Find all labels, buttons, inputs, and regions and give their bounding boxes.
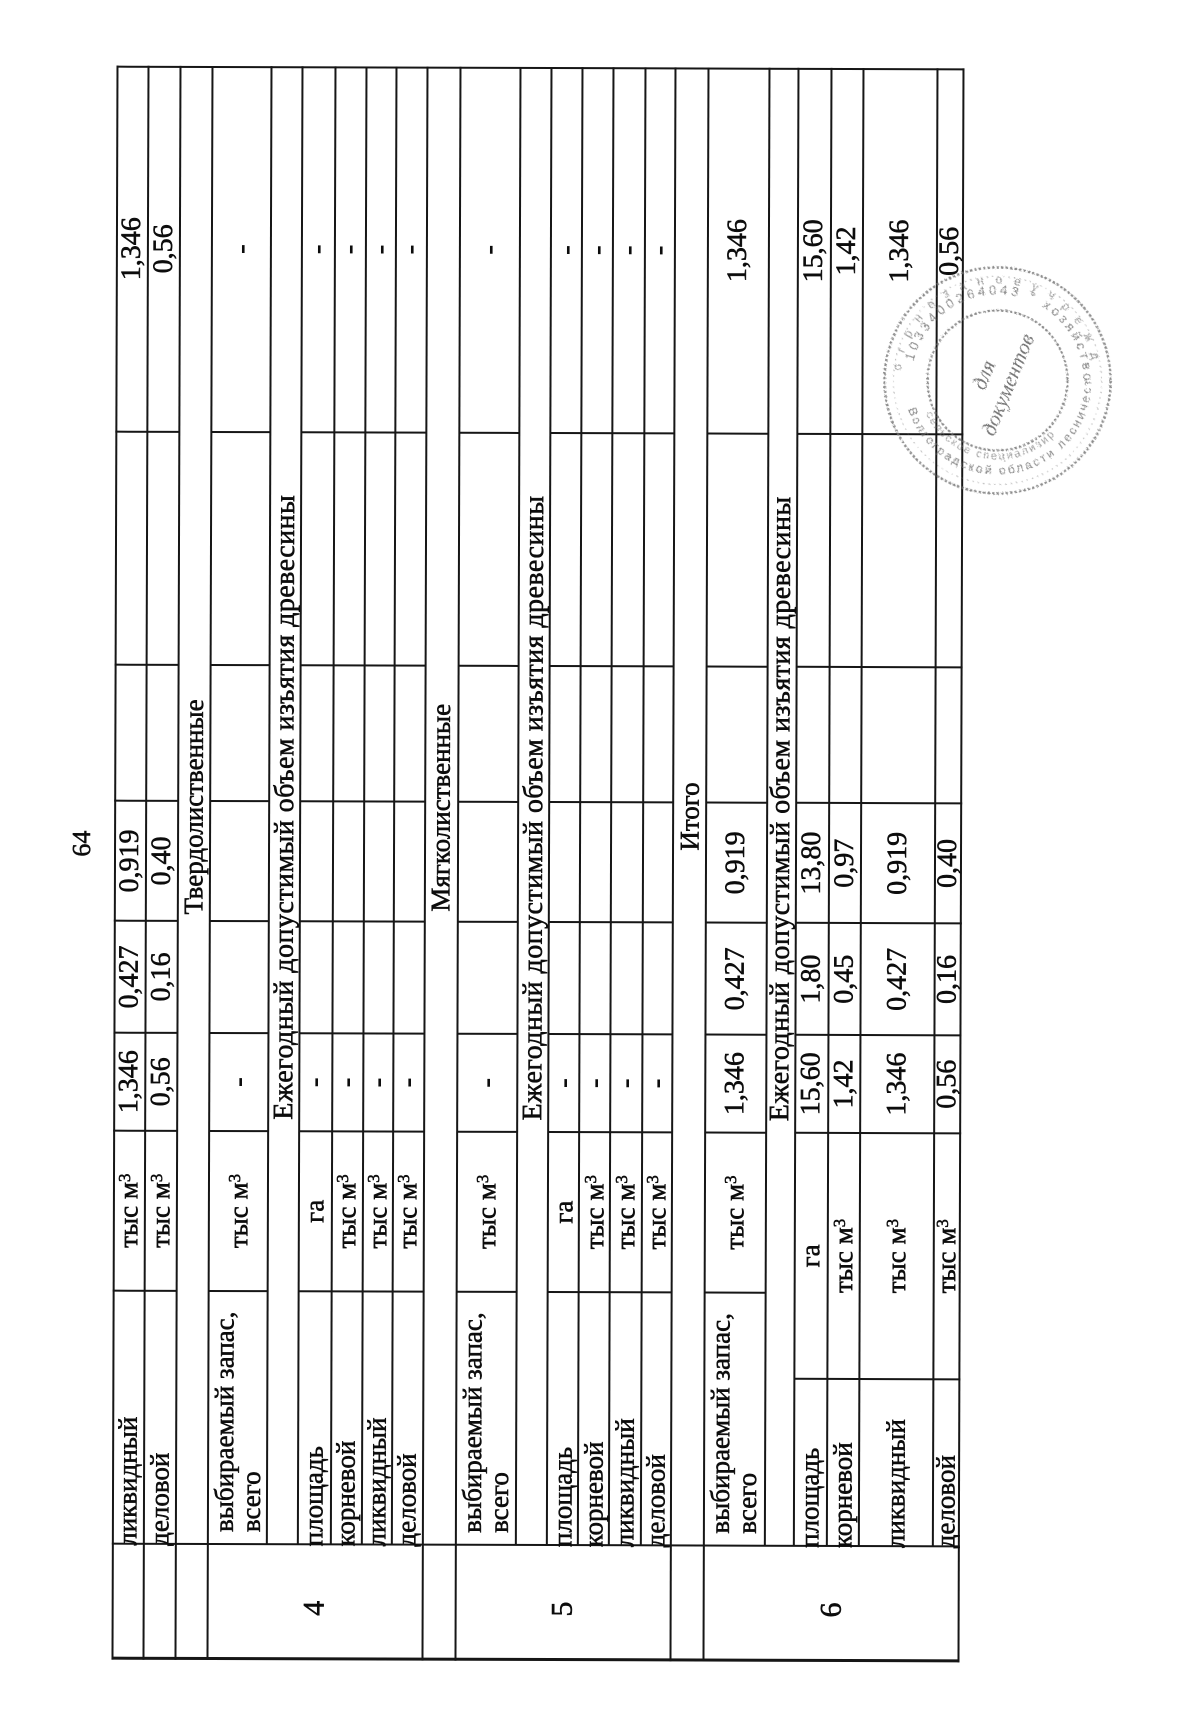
svg-text:Волгоградской области лесничес: Волгоградской области лесничество (847, 230, 1095, 478)
